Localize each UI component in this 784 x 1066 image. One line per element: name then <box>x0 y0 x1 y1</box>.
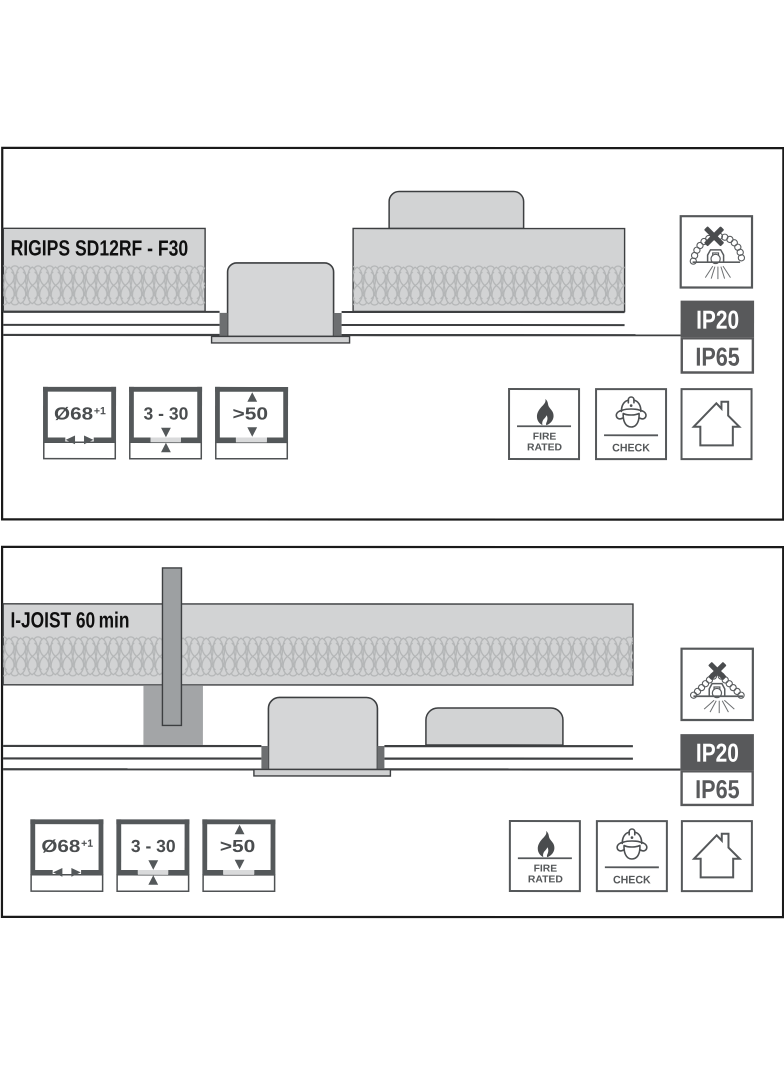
svg-text:3 - 30: 3 - 30 <box>131 836 176 856</box>
svg-text:IP65: IP65 <box>695 342 740 372</box>
svg-text:I-JOIST 60 min: I-JOIST 60 min <box>10 607 129 632</box>
svg-text:IP20: IP20 <box>696 305 739 335</box>
svg-text:IP65: IP65 <box>695 774 740 804</box>
svg-text:+1: +1 <box>81 838 93 850</box>
svg-text:>50: >50 <box>220 836 256 856</box>
svg-text:Ø68: Ø68 <box>54 403 93 423</box>
svg-text:>50: >50 <box>232 404 268 424</box>
svg-text:3 - 30: 3 - 30 <box>144 404 189 424</box>
svg-text:IP20: IP20 <box>696 738 739 768</box>
svg-text:RIGIPS SD12RF - F30: RIGIPS SD12RF - F30 <box>11 235 189 260</box>
svg-text:+1: +1 <box>94 405 106 417</box>
svg-text:Ø68: Ø68 <box>41 836 80 856</box>
